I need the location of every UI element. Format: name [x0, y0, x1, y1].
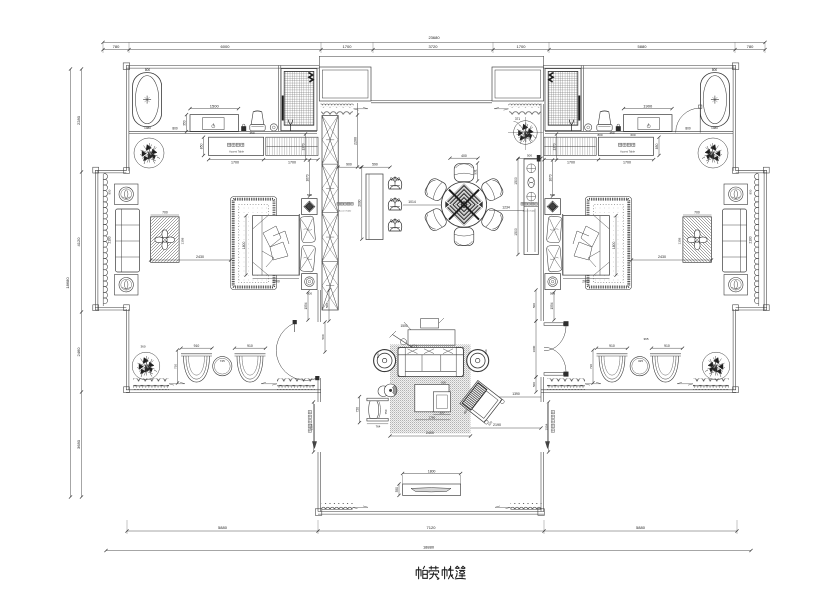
svg-text:1554: 1554 — [544, 423, 548, 430]
svg-text:325: 325 — [638, 359, 643, 363]
svg-text:1390: 1390 — [512, 392, 520, 396]
svg-text:500: 500 — [325, 303, 329, 308]
svg-text:850: 850 — [749, 189, 753, 194]
svg-text:18680: 18680 — [65, 277, 70, 289]
svg-text:1358: 1358 — [678, 237, 682, 244]
svg-text:1700: 1700 — [517, 44, 527, 49]
svg-text:1014: 1014 — [408, 200, 416, 204]
svg-text:1554: 1554 — [304, 302, 308, 309]
svg-text:5880: 5880 — [638, 44, 648, 49]
svg-text:1370: 1370 — [552, 143, 556, 150]
svg-text:764: 764 — [376, 353, 380, 358]
svg-text:350: 350 — [182, 120, 186, 126]
svg-text:1800: 1800 — [242, 241, 246, 249]
svg-text:500: 500 — [532, 303, 536, 308]
svg-text:Accent Table: Accent Table — [620, 150, 635, 154]
svg-text:720: 720 — [355, 407, 359, 413]
svg-text:1900: 1900 — [643, 103, 653, 108]
svg-text:1080: 1080 — [144, 126, 151, 130]
svg-text:1700: 1700 — [343, 44, 353, 49]
svg-text:360: 360 — [140, 345, 145, 349]
svg-text:400: 400 — [461, 154, 467, 158]
svg-text:450: 450 — [249, 131, 254, 135]
svg-text:3680: 3680 — [76, 439, 81, 449]
svg-text:Accent Table: Accent Table — [229, 150, 244, 154]
svg-text:2190: 2190 — [493, 423, 501, 427]
svg-text:910: 910 — [609, 344, 615, 348]
svg-text:2000: 2000 — [582, 280, 590, 284]
svg-text:3720: 3720 — [429, 44, 439, 49]
svg-text:1500: 1500 — [514, 177, 518, 185]
svg-text:5880: 5880 — [636, 525, 646, 530]
svg-text:1670: 1670 — [548, 174, 552, 181]
svg-text:910: 910 — [664, 344, 670, 348]
svg-text:800: 800 — [685, 127, 691, 131]
svg-text:500: 500 — [441, 380, 446, 384]
svg-text:2100: 2100 — [108, 236, 112, 243]
svg-text:1080: 1080 — [711, 126, 718, 130]
svg-text:800: 800 — [172, 127, 178, 131]
svg-text:1700: 1700 — [231, 160, 239, 164]
svg-text:910: 910 — [247, 344, 253, 348]
svg-text:1500: 1500 — [400, 324, 407, 328]
svg-text:850: 850 — [655, 143, 659, 149]
svg-text:800: 800 — [597, 133, 602, 137]
svg-text:730: 730 — [173, 364, 177, 369]
svg-text:500: 500 — [532, 382, 536, 387]
svg-text:1554: 1554 — [550, 302, 554, 309]
svg-text:2000: 2000 — [272, 280, 280, 284]
svg-text:1358: 1358 — [181, 237, 185, 244]
svg-text:1800: 1800 — [612, 241, 616, 249]
svg-text:900: 900 — [346, 162, 352, 166]
svg-text:910: 910 — [194, 344, 200, 348]
svg-text:1800: 1800 — [428, 469, 436, 473]
svg-text:450: 450 — [609, 131, 614, 135]
svg-text:23680: 23680 — [428, 35, 440, 40]
svg-text:730: 730 — [589, 364, 593, 369]
svg-text:500: 500 — [527, 154, 532, 158]
svg-text:750: 750 — [384, 409, 388, 414]
svg-text:931: 931 — [473, 169, 477, 175]
svg-text:590: 590 — [372, 162, 378, 166]
svg-text:2200: 2200 — [353, 137, 357, 145]
svg-text:800: 800 — [712, 68, 718, 72]
svg-text:2280: 2280 — [76, 115, 81, 125]
svg-text:Accent Table: Accent Table — [339, 210, 352, 213]
svg-text:2430: 2430 — [658, 255, 666, 259]
svg-text:350: 350 — [395, 487, 399, 493]
svg-text:6000: 6000 — [221, 44, 231, 49]
svg-text:800: 800 — [145, 68, 151, 72]
svg-text:500: 500 — [321, 334, 325, 339]
svg-text:2400: 2400 — [426, 431, 434, 435]
svg-text:1700: 1700 — [288, 160, 296, 164]
svg-text:1370: 1370 — [301, 143, 305, 150]
svg-text:764: 764 — [376, 424, 381, 428]
svg-text:764: 764 — [484, 349, 488, 354]
svg-text:780: 780 — [747, 44, 754, 49]
svg-text:365: 365 — [643, 337, 648, 341]
svg-text:600: 600 — [630, 133, 635, 137]
svg-text:1234: 1234 — [502, 206, 510, 210]
svg-text:2430: 2430 — [196, 255, 204, 259]
svg-text:18880: 18880 — [423, 545, 435, 550]
svg-text:1500: 1500 — [514, 228, 518, 236]
svg-text:1500: 1500 — [210, 103, 220, 108]
svg-text:520: 520 — [440, 410, 445, 414]
svg-text:4120: 4120 — [76, 237, 81, 247]
svg-text:2100: 2100 — [749, 236, 753, 243]
svg-text:780: 780 — [113, 44, 120, 49]
svg-text:700: 700 — [162, 210, 168, 214]
svg-text:700: 700 — [694, 210, 700, 214]
svg-text:1000: 1000 — [532, 345, 536, 352]
svg-text:7120: 7120 — [427, 525, 437, 530]
svg-text:1760: 1760 — [429, 416, 436, 420]
svg-text:371: 371 — [515, 117, 521, 121]
svg-text:5880: 5880 — [218, 525, 228, 530]
svg-text:1670: 1670 — [305, 174, 309, 181]
svg-text:850: 850 — [108, 189, 112, 194]
svg-text:1700: 1700 — [623, 160, 631, 164]
svg-text:1700: 1700 — [567, 160, 575, 164]
svg-text:Accent Table: Accent Table — [523, 210, 536, 213]
svg-text:725: 725 — [220, 359, 225, 363]
svg-text:2000: 2000 — [358, 199, 362, 206]
svg-text:2460: 2460 — [76, 347, 81, 357]
svg-text:850: 850 — [199, 143, 203, 149]
